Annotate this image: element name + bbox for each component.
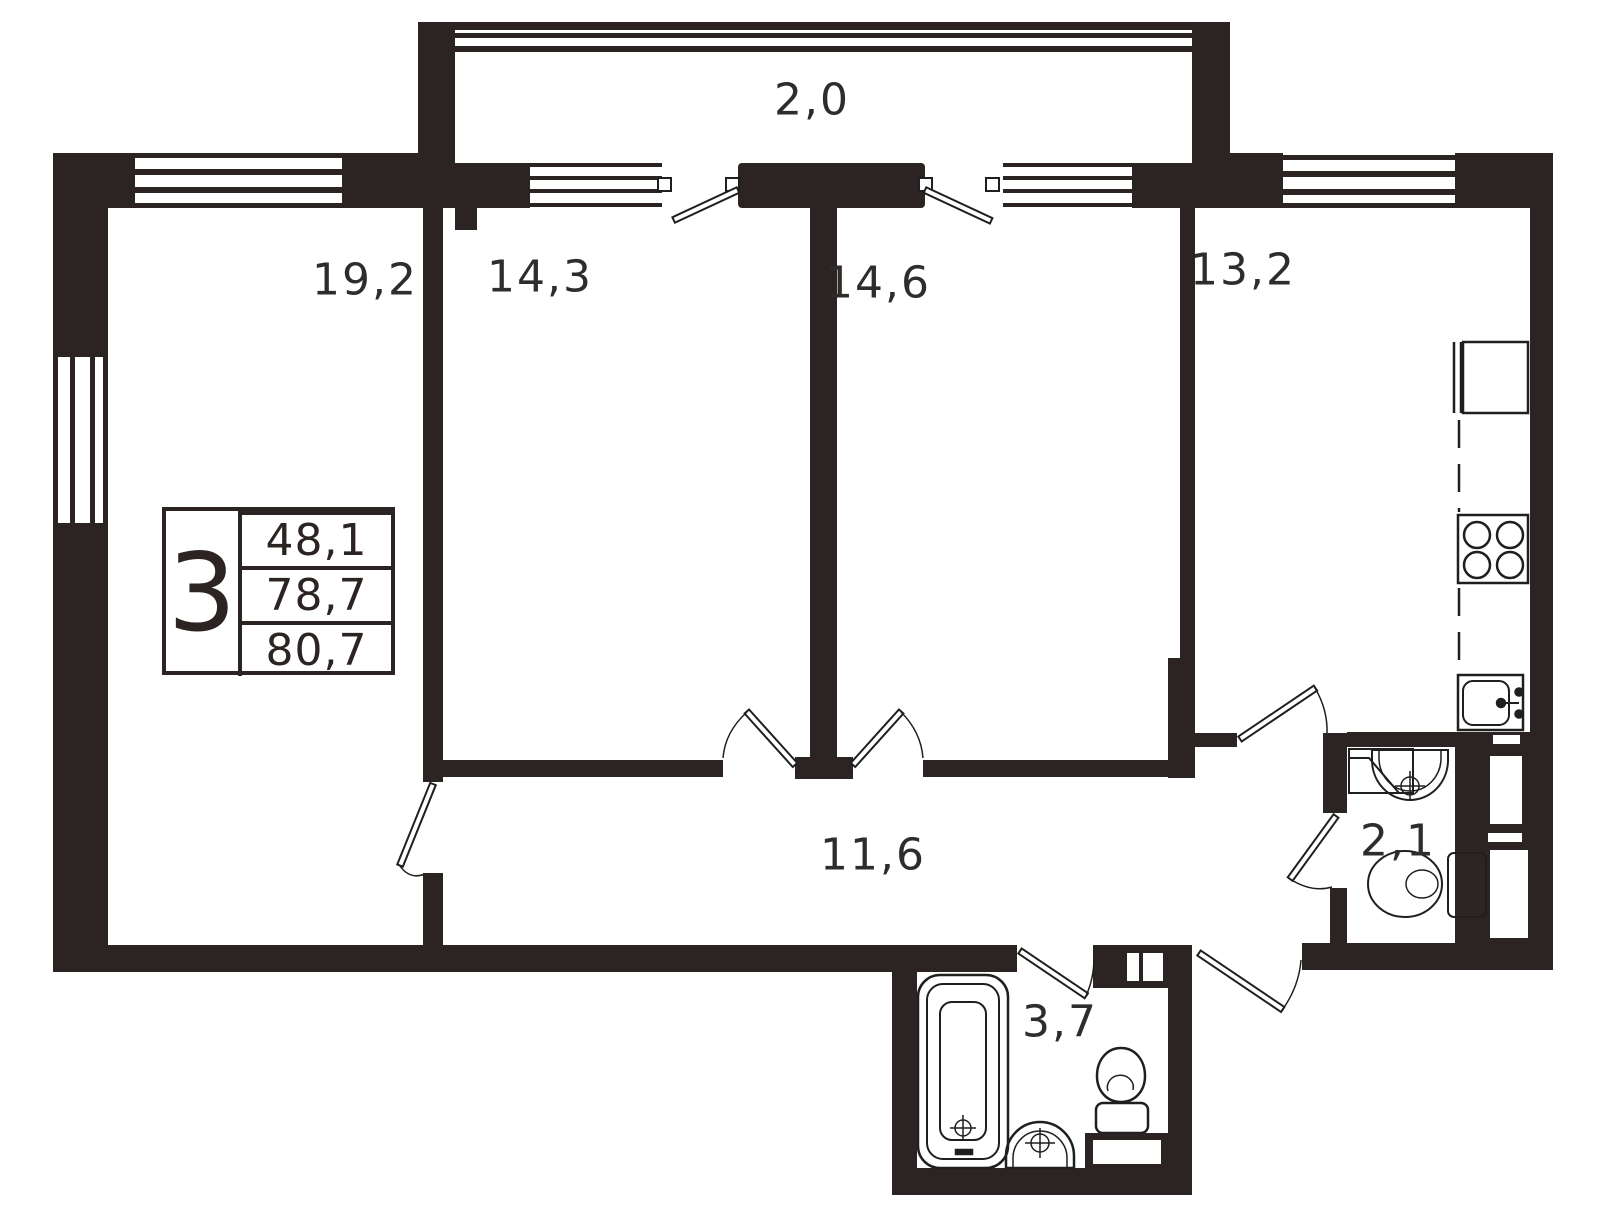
wc-cabinet-fold: [1349, 758, 1413, 793]
balcony-window-right: [1003, 163, 1132, 207]
room-label-hallway: 11,6: [820, 830, 926, 881]
bathroom-toilet-tank: [1096, 1103, 1148, 1133]
vent-duct: [1143, 953, 1163, 981]
door-arc: [400, 866, 425, 876]
kitchen-fixtures: [1454, 342, 1528, 730]
door-arc: [1086, 958, 1094, 996]
living-area-value: 48,1: [242, 511, 391, 566]
door-leaf-bedroom1: [745, 709, 798, 767]
kitchen-window: [1283, 155, 1455, 208]
room-label-balcony: 2,0: [774, 75, 850, 126]
room-label-bedroom-2: 14,6: [825, 258, 931, 309]
balcony-door-leaf: [924, 187, 993, 223]
top-wall-segment: [342, 153, 455, 208]
door-leaf-kitchen: [1238, 686, 1317, 742]
bathroom-left-wall: [892, 972, 917, 1195]
burner: [1464, 522, 1490, 548]
door-leaf-bathroom: [1018, 949, 1088, 999]
wall-bedroom2-hall: [923, 760, 1168, 777]
windows: [53, 153, 1455, 523]
balcony-window-left: [530, 163, 662, 207]
bathtub-overflow: [956, 1150, 972, 1154]
bathroom-right-wall: [1168, 945, 1192, 1195]
kitchen-door-stub: [1195, 733, 1237, 747]
top-wall-segment: [1192, 153, 1283, 208]
burner: [1464, 552, 1490, 578]
room-label-kitchen: 13,2: [1190, 245, 1296, 296]
balcony-glazing: [449, 22, 1198, 52]
bottom-wall-left: [53, 945, 1017, 972]
door-arc: [1283, 960, 1301, 1009]
left-wall-lower: [53, 523, 108, 972]
bottom-wall-right: [1302, 943, 1553, 970]
bathroom-duct: [1093, 1140, 1161, 1164]
door-leaf-wc: [1288, 814, 1339, 881]
wc-toilet-bowl-inner: [1406, 870, 1438, 898]
left-wall-upper: [53, 153, 108, 357]
total-area-value: 80,7: [242, 621, 391, 676]
burner: [1497, 522, 1523, 548]
wall-bedroom2-kitchen-lower: [1168, 658, 1195, 778]
room-label-living-room: 19,2: [312, 255, 418, 306]
entrance-door-leaf: [1197, 951, 1284, 1012]
hinge-square: [986, 178, 999, 191]
faucet-handle: [1516, 689, 1523, 696]
shaft-slit: [1488, 833, 1522, 842]
bathroom-bottom-wall: [892, 1168, 1192, 1195]
floor-plan: 2,0 19,2 14,3 14,6 13,2 11,6 2,1 3,7 3 4…: [0, 0, 1608, 1217]
door-leaf-bedroom2: [851, 709, 904, 767]
wall-living-hall-stub: [423, 873, 443, 947]
room-label-bathroom: 3,7: [1022, 997, 1098, 1048]
balcony-door-leaf: [672, 187, 739, 222]
top-wall-segment: [455, 163, 530, 208]
wc-sink-drain-cross: [1395, 771, 1425, 801]
balcony-center-pier: [738, 163, 925, 208]
right-wall: [1530, 153, 1553, 970]
left-wall-window: [53, 357, 108, 523]
door-arc: [723, 712, 747, 758]
wall-living-bedroom1: [423, 208, 443, 782]
wall-pier: [455, 208, 477, 230]
bathtub-drain-cross: [950, 1115, 976, 1141]
bathroom-toilet-bowl-inner: [1107, 1075, 1133, 1091]
door-arc: [1290, 879, 1332, 889]
door-pier: [795, 757, 853, 779]
door-arc: [901, 712, 923, 758]
balcony-left-wall: [418, 22, 455, 163]
top-wall-segment: [1132, 163, 1192, 208]
shaft-duct: [1490, 756, 1522, 824]
room-label-bedroom-1: 14,3: [487, 252, 593, 303]
shaft-duct: [1490, 850, 1528, 938]
door-leaf-living: [397, 783, 436, 867]
room-label-wc: 2,1: [1360, 816, 1436, 867]
burner: [1497, 552, 1523, 578]
wc-left-wall-upper: [1323, 733, 1347, 813]
faucet-handle: [1516, 711, 1523, 718]
room-count: 3: [166, 511, 242, 676]
apartment-info-table: 3 48,1 78,7 80,7: [162, 507, 395, 675]
vent-duct: [1127, 953, 1139, 981]
wc-left-wall-stub: [1330, 888, 1347, 943]
shaft-slit: [1493, 735, 1520, 744]
balcony-right-wall: [1192, 22, 1230, 163]
apartment-area-value: 78,7: [242, 566, 391, 621]
hinge-square: [658, 178, 671, 191]
living-room-window: [135, 153, 342, 208]
door-arc: [1315, 688, 1327, 734]
wall-bedroom1-hall: [443, 760, 723, 777]
fridge: [1463, 342, 1528, 413]
